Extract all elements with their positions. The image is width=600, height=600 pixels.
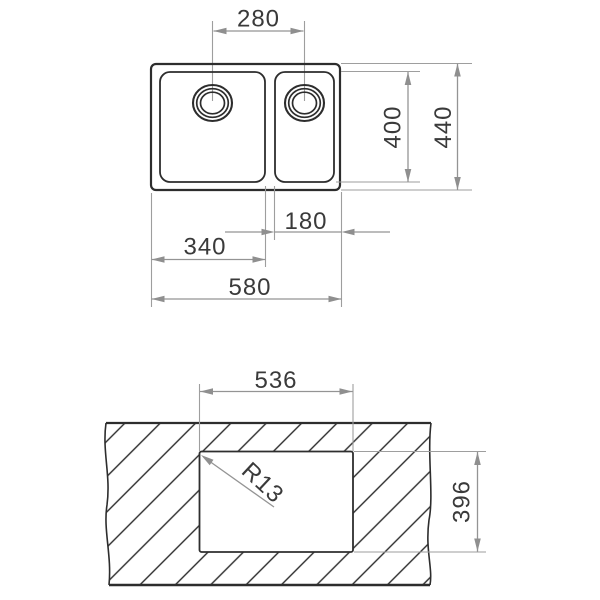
dimension-280: 280 [213,6,305,102]
arrowhead [454,64,461,77]
dimension-440: 440 [430,64,461,191]
arrowhead [474,452,481,465]
dimension-340: 340 [152,234,266,263]
arrowhead [152,256,165,263]
arrowhead [291,28,304,35]
arrowhead [329,296,342,303]
arrowhead [454,177,461,190]
dimension-label-cutout-width: 536 [254,367,297,394]
arrowhead [405,169,412,182]
worktop-cutout-view: 536 396 R13 [105,367,486,585]
arrowhead [152,296,165,303]
arrowhead [405,72,412,85]
dimension-400: 400 [380,72,412,182]
dimension-580: 580 [152,274,342,302]
dimension-label-right-bowl-width: 180 [284,208,327,235]
dimension-label-cutout-height: 396 [449,480,476,523]
arrowhead [340,388,353,395]
arrowhead [474,539,481,552]
dimension-label-left-bowl-width: 340 [183,234,226,261]
dimension-label-drain-spacing: 280 [237,6,280,33]
arrowhead [214,28,227,35]
sink-rim-outline [151,64,340,190]
arrowhead [253,256,266,263]
arrowhead [200,388,213,395]
sink-plan-view: 280 400 [151,6,472,308]
technical-drawing: 280 400 [0,0,600,600]
dimension-180: 180 [225,208,390,235]
arrowhead [342,229,355,236]
dimension-label-overall-width: 580 [228,274,271,301]
dimension-label-overall-depth: 440 [430,105,457,148]
arrowhead [262,229,275,236]
dimension-label-bowl-depth: 400 [380,105,407,148]
